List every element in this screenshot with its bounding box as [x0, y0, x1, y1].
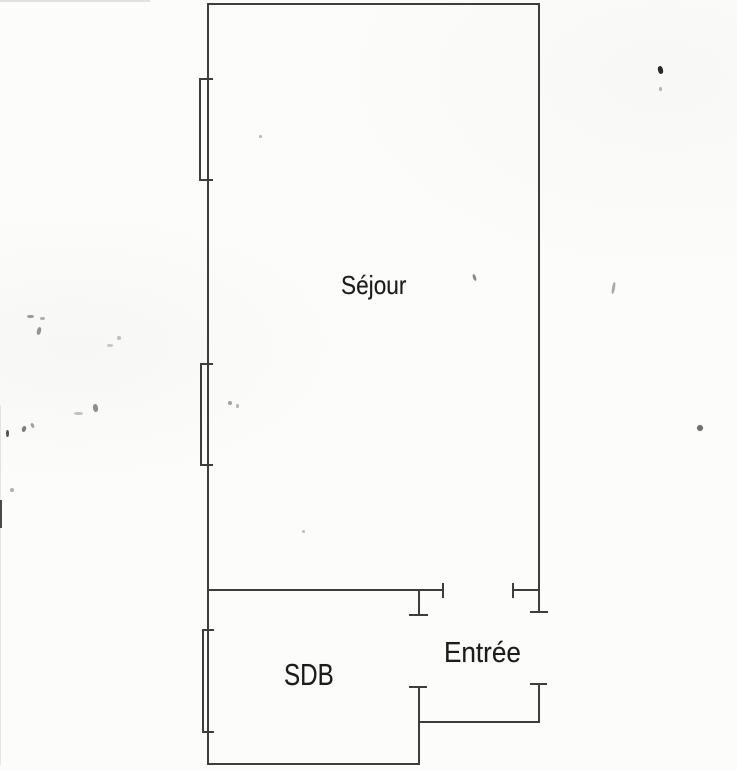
- scan-speck: [27, 315, 34, 318]
- scanner-edge-left-faint: [0, 405, 1, 765]
- scan-speck: [30, 423, 35, 429]
- scan-speck: [659, 87, 662, 91]
- scan-speck: [21, 425, 27, 432]
- scan-speck: [10, 488, 14, 492]
- scan-speck: [228, 401, 233, 406]
- scan-speck: [40, 317, 45, 320]
- window-symbol-sdb: [202, 629, 214, 733]
- room-label-entree: Entrée: [444, 639, 521, 668]
- scan-speck: [117, 336, 121, 340]
- scanner-edge-top: [0, 0, 150, 2]
- scan-speck: [259, 135, 262, 138]
- entree-bottom-wall: [418, 721, 540, 723]
- scan-speck: [92, 404, 98, 413]
- divider-wall-left: [207, 589, 444, 591]
- room-label-sdb: SDB: [284, 659, 334, 690]
- window-symbol-top: [199, 78, 213, 181]
- scan-speck: [74, 412, 83, 415]
- partition-door-top-cap: [409, 614, 428, 616]
- partition-wall-lower: [418, 687, 420, 765]
- right-wall-lower: [538, 683, 540, 723]
- scan-speck: [611, 282, 616, 294]
- scan-speck: [657, 65, 664, 74]
- scan-speck: [696, 424, 704, 432]
- scan-speck: [472, 274, 477, 282]
- scan-speck: [236, 404, 239, 408]
- divider-wall-right: [512, 589, 540, 591]
- scan-speck: [302, 530, 305, 533]
- scan-speck: [36, 327, 42, 336]
- room-label-sejour: Séjour: [341, 272, 406, 298]
- scanned-floor-plan-page: Séjour SDB Entrée: [0, 0, 737, 770]
- scanner-edge-left-dark: [0, 500, 2, 528]
- divider-door-tick-left: [442, 583, 444, 598]
- scan-speck: [6, 430, 9, 437]
- partition-door-jamb-top: [418, 589, 420, 616]
- bottom-wall: [207, 763, 420, 765]
- right-wall-upper: [538, 3, 540, 612]
- window-symbol-middle: [200, 363, 213, 466]
- entrance-door-jamb-top-cap: [530, 611, 548, 613]
- top-wall: [207, 3, 540, 5]
- scan-speck: [107, 344, 113, 347]
